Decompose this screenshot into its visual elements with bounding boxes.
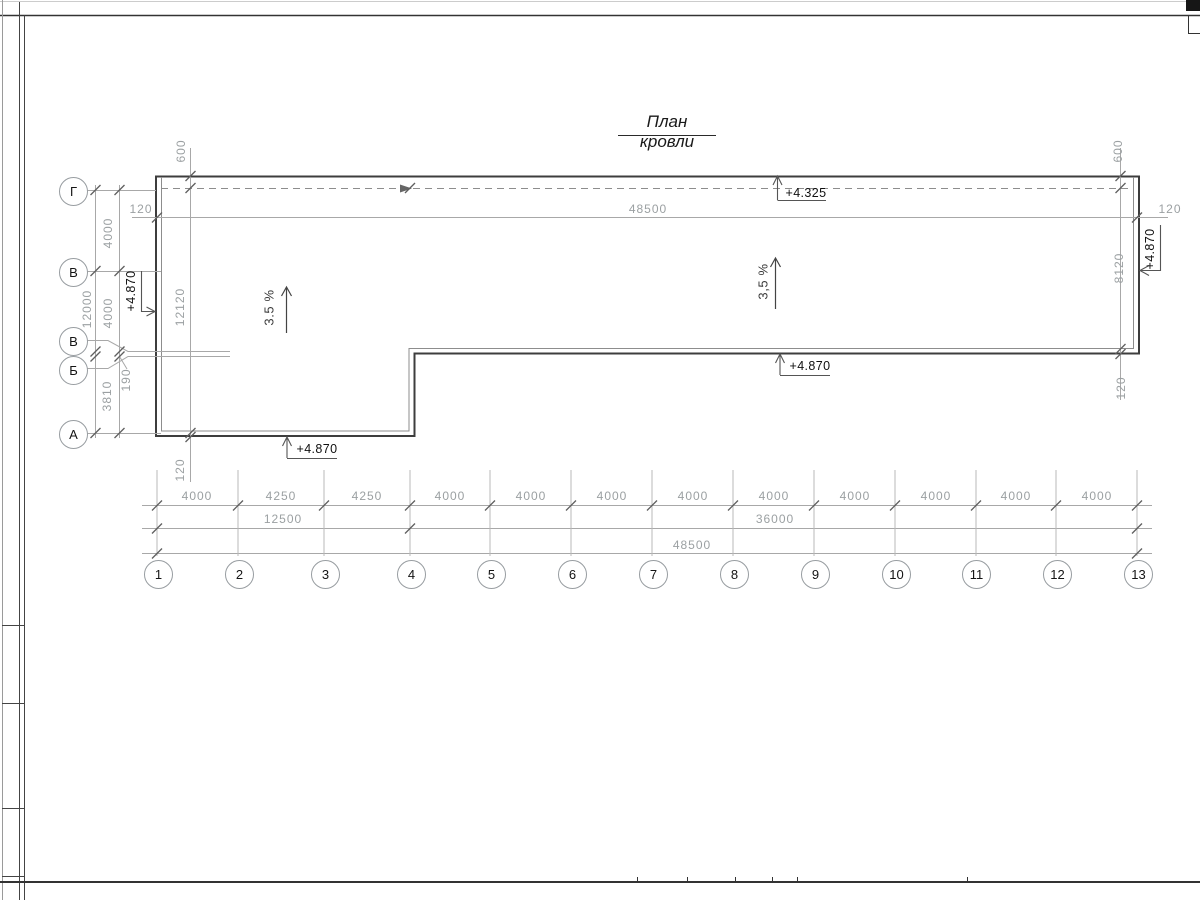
dim-bottom-segment-9: 4000	[825, 489, 885, 503]
dim-bottom-segment-8: 4000	[744, 489, 804, 503]
axis-circle-col-10: 10	[882, 560, 911, 589]
axis-circle-row-v2: В	[59, 327, 88, 356]
slope-label-right: 3,5 %	[756, 252, 771, 312]
dim-top-total: 48500	[608, 202, 688, 216]
dim-left-seg-2: 4000	[101, 281, 115, 345]
axis-circle-col-11: 11	[962, 560, 991, 589]
dim-bottom-segment-7: 4000	[663, 489, 723, 503]
axis-circle-col-2: 2	[225, 560, 254, 589]
dim-bottom-segment-4: 4000	[420, 489, 480, 503]
axis-circle-row-a: А	[59, 420, 88, 449]
dim-right-inner: 8120	[1112, 236, 1126, 300]
axis-circle-col-13: 13	[1124, 560, 1153, 589]
axis-circle-col-1: 1	[144, 560, 173, 589]
axis-circle-row-v1: В	[59, 258, 88, 287]
dim-bottom-total: 48500	[662, 538, 722, 552]
axis-circle-col-9: 9	[801, 560, 830, 589]
dim-left-seg-3: 190	[119, 348, 133, 412]
dim-right-parapet-top: 600	[1111, 119, 1125, 183]
dim-bottom-segment-10: 4000	[906, 489, 966, 503]
dim-left-seg-4: 3810	[100, 364, 114, 428]
elevation-mark-step: +4.870	[786, 359, 834, 373]
fold-marks	[2, 626, 25, 877]
elevation-leader-left	[141, 271, 155, 316]
dim-right-parapet-bottom: 120	[1114, 356, 1128, 420]
dim-bottom-segment-12: 4000	[1067, 489, 1127, 503]
dim-bottom-segment-11: 4000	[986, 489, 1046, 503]
dim-bottom-segment-6: 4000	[582, 489, 642, 503]
corner-mark	[1186, 0, 1200, 11]
elevation-mark-right-edge: +4.870	[1143, 219, 1157, 279]
axis-circle-col-12: 12	[1043, 560, 1072, 589]
dim-bottom-segment-3: 4250	[337, 489, 397, 503]
slope-label-left: 3.5 %	[262, 278, 277, 338]
slope-arrow-left	[282, 287, 292, 333]
axis-circle-col-7: 7	[639, 560, 668, 589]
elevation-mark-bottom-left: +4.870	[293, 442, 341, 456]
dim-left-inner-total: 12120	[173, 275, 187, 339]
elevation-mark-left-edge: +4.870	[124, 261, 138, 321]
axis-circle-col-4: 4	[397, 560, 426, 589]
dim-left-seg-1: 4000	[101, 201, 115, 265]
dim-bottom-group-right: 36000	[745, 512, 805, 526]
drawing-sheet: План кровли 120 48500 120 12000 4000 400…	[0, 0, 1200, 900]
slope-arrows	[282, 258, 781, 333]
drawing-title: План кровли	[618, 112, 716, 136]
dim-bottom-segment-2: 4250	[251, 489, 311, 503]
dim-left-parapet-top: 600	[174, 119, 188, 183]
axis-circle-col-6: 6	[558, 560, 587, 589]
dim-bottom-segment-5: 4000	[501, 489, 561, 503]
axis-circle-col-8: 8	[720, 560, 749, 589]
dim-top-right-offset: 120	[1156, 202, 1184, 216]
dim-top-left-offset: 120	[127, 202, 155, 216]
dim-bottom-group-left: 12500	[253, 512, 313, 526]
elevation-leaders	[141, 176, 1161, 459]
slope-arrow-right	[771, 258, 781, 309]
axis-circle-row-g: Г	[59, 177, 88, 206]
axis-circle-row-b: Б	[59, 356, 88, 385]
elevation-mark-top: +4.325	[782, 186, 830, 200]
axis-circle-col-5: 5	[477, 560, 506, 589]
dim-bottom-segment-1: 4000	[167, 489, 227, 503]
axis-circle-col-3: 3	[311, 560, 340, 589]
